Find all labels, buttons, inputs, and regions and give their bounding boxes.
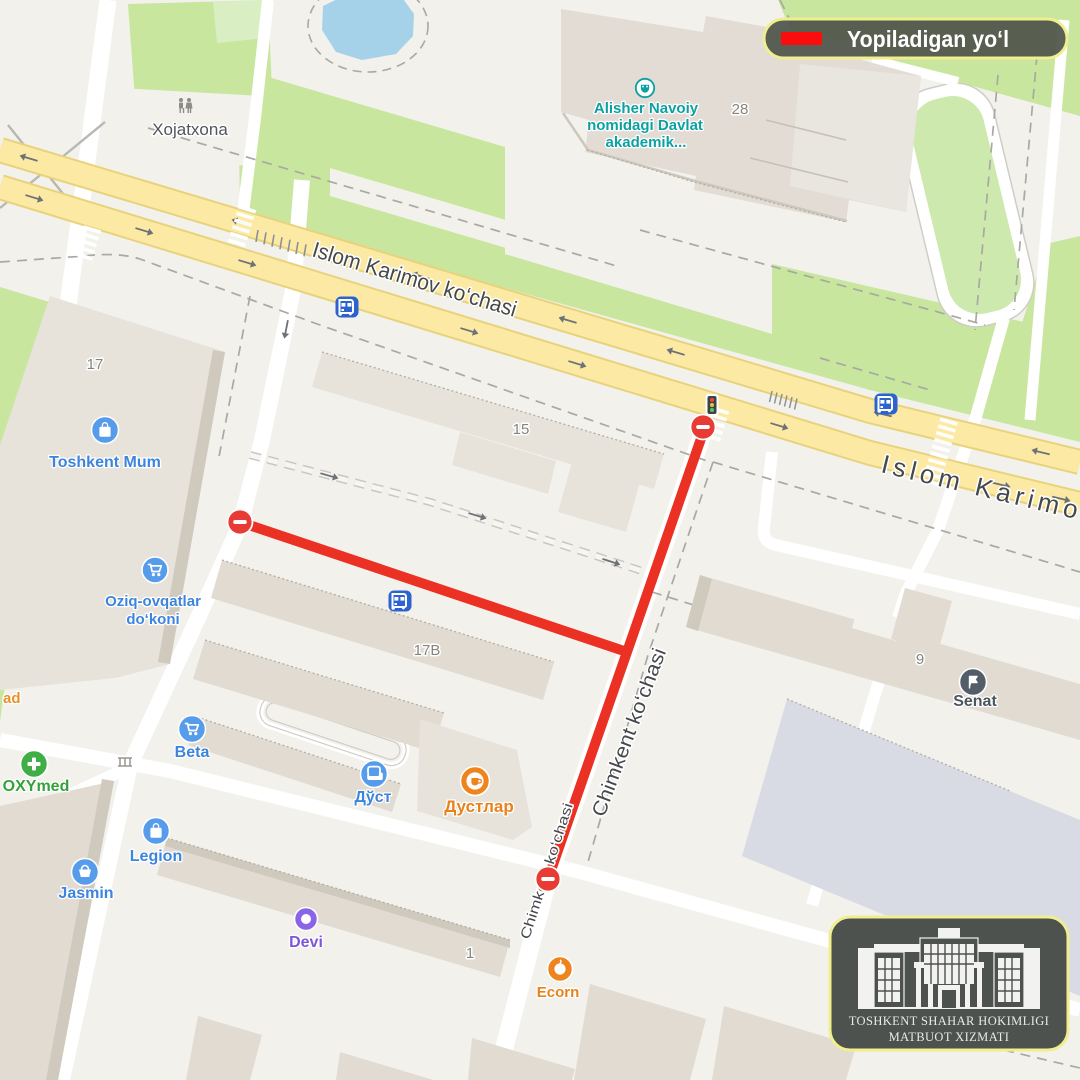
svg-text:Xojatxona: Xojatxona	[152, 120, 228, 139]
svg-text:17B: 17B	[414, 642, 441, 659]
svg-text:15: 15	[513, 421, 530, 438]
svg-text:OXYmed: OXYmed	[3, 778, 70, 795]
svg-text:Yopiladigan yo‘l: Yopiladigan yo‘l	[847, 26, 1009, 52]
svg-text:Toshkent Mum: Toshkent Mum	[49, 454, 161, 471]
svg-text:TOSHKENT SHAHAR HOKIMLIGI: TOSHKENT SHAHAR HOKIMLIGI	[849, 1014, 1050, 1028]
svg-text:ad: ad	[3, 690, 21, 707]
svg-text:17: 17	[87, 356, 104, 373]
svg-text:28: 28	[732, 101, 749, 118]
svg-text:MATBUOT XIZMATI: MATBUOT XIZMATI	[889, 1030, 1010, 1044]
svg-text:Ecorn: Ecorn	[537, 984, 580, 1001]
svg-text:Oziq-ovqatlar: Oziq-ovqatlar	[105, 593, 201, 610]
svg-text:Alisher Navoiy: Alisher Navoiy	[594, 100, 699, 117]
svg-text:Senat: Senat	[953, 693, 997, 710]
svg-text:nomidagi Davlat: nomidagi Davlat	[587, 117, 703, 134]
svg-text:Devi: Devi	[289, 934, 323, 951]
svg-text:Beta: Beta	[175, 744, 210, 761]
svg-text:Дустлар: Дустлар	[444, 797, 514, 816]
svg-text:akademik...: akademik...	[606, 134, 687, 151]
svg-text:Jasmin: Jasmin	[58, 885, 113, 902]
svg-text:Legion: Legion	[130, 848, 182, 865]
svg-text:9: 9	[916, 651, 924, 668]
svg-text:Дўст: Дўст	[354, 789, 391, 806]
svg-text:1: 1	[466, 945, 474, 962]
svg-text:do‘koni: do‘koni	[126, 611, 179, 628]
